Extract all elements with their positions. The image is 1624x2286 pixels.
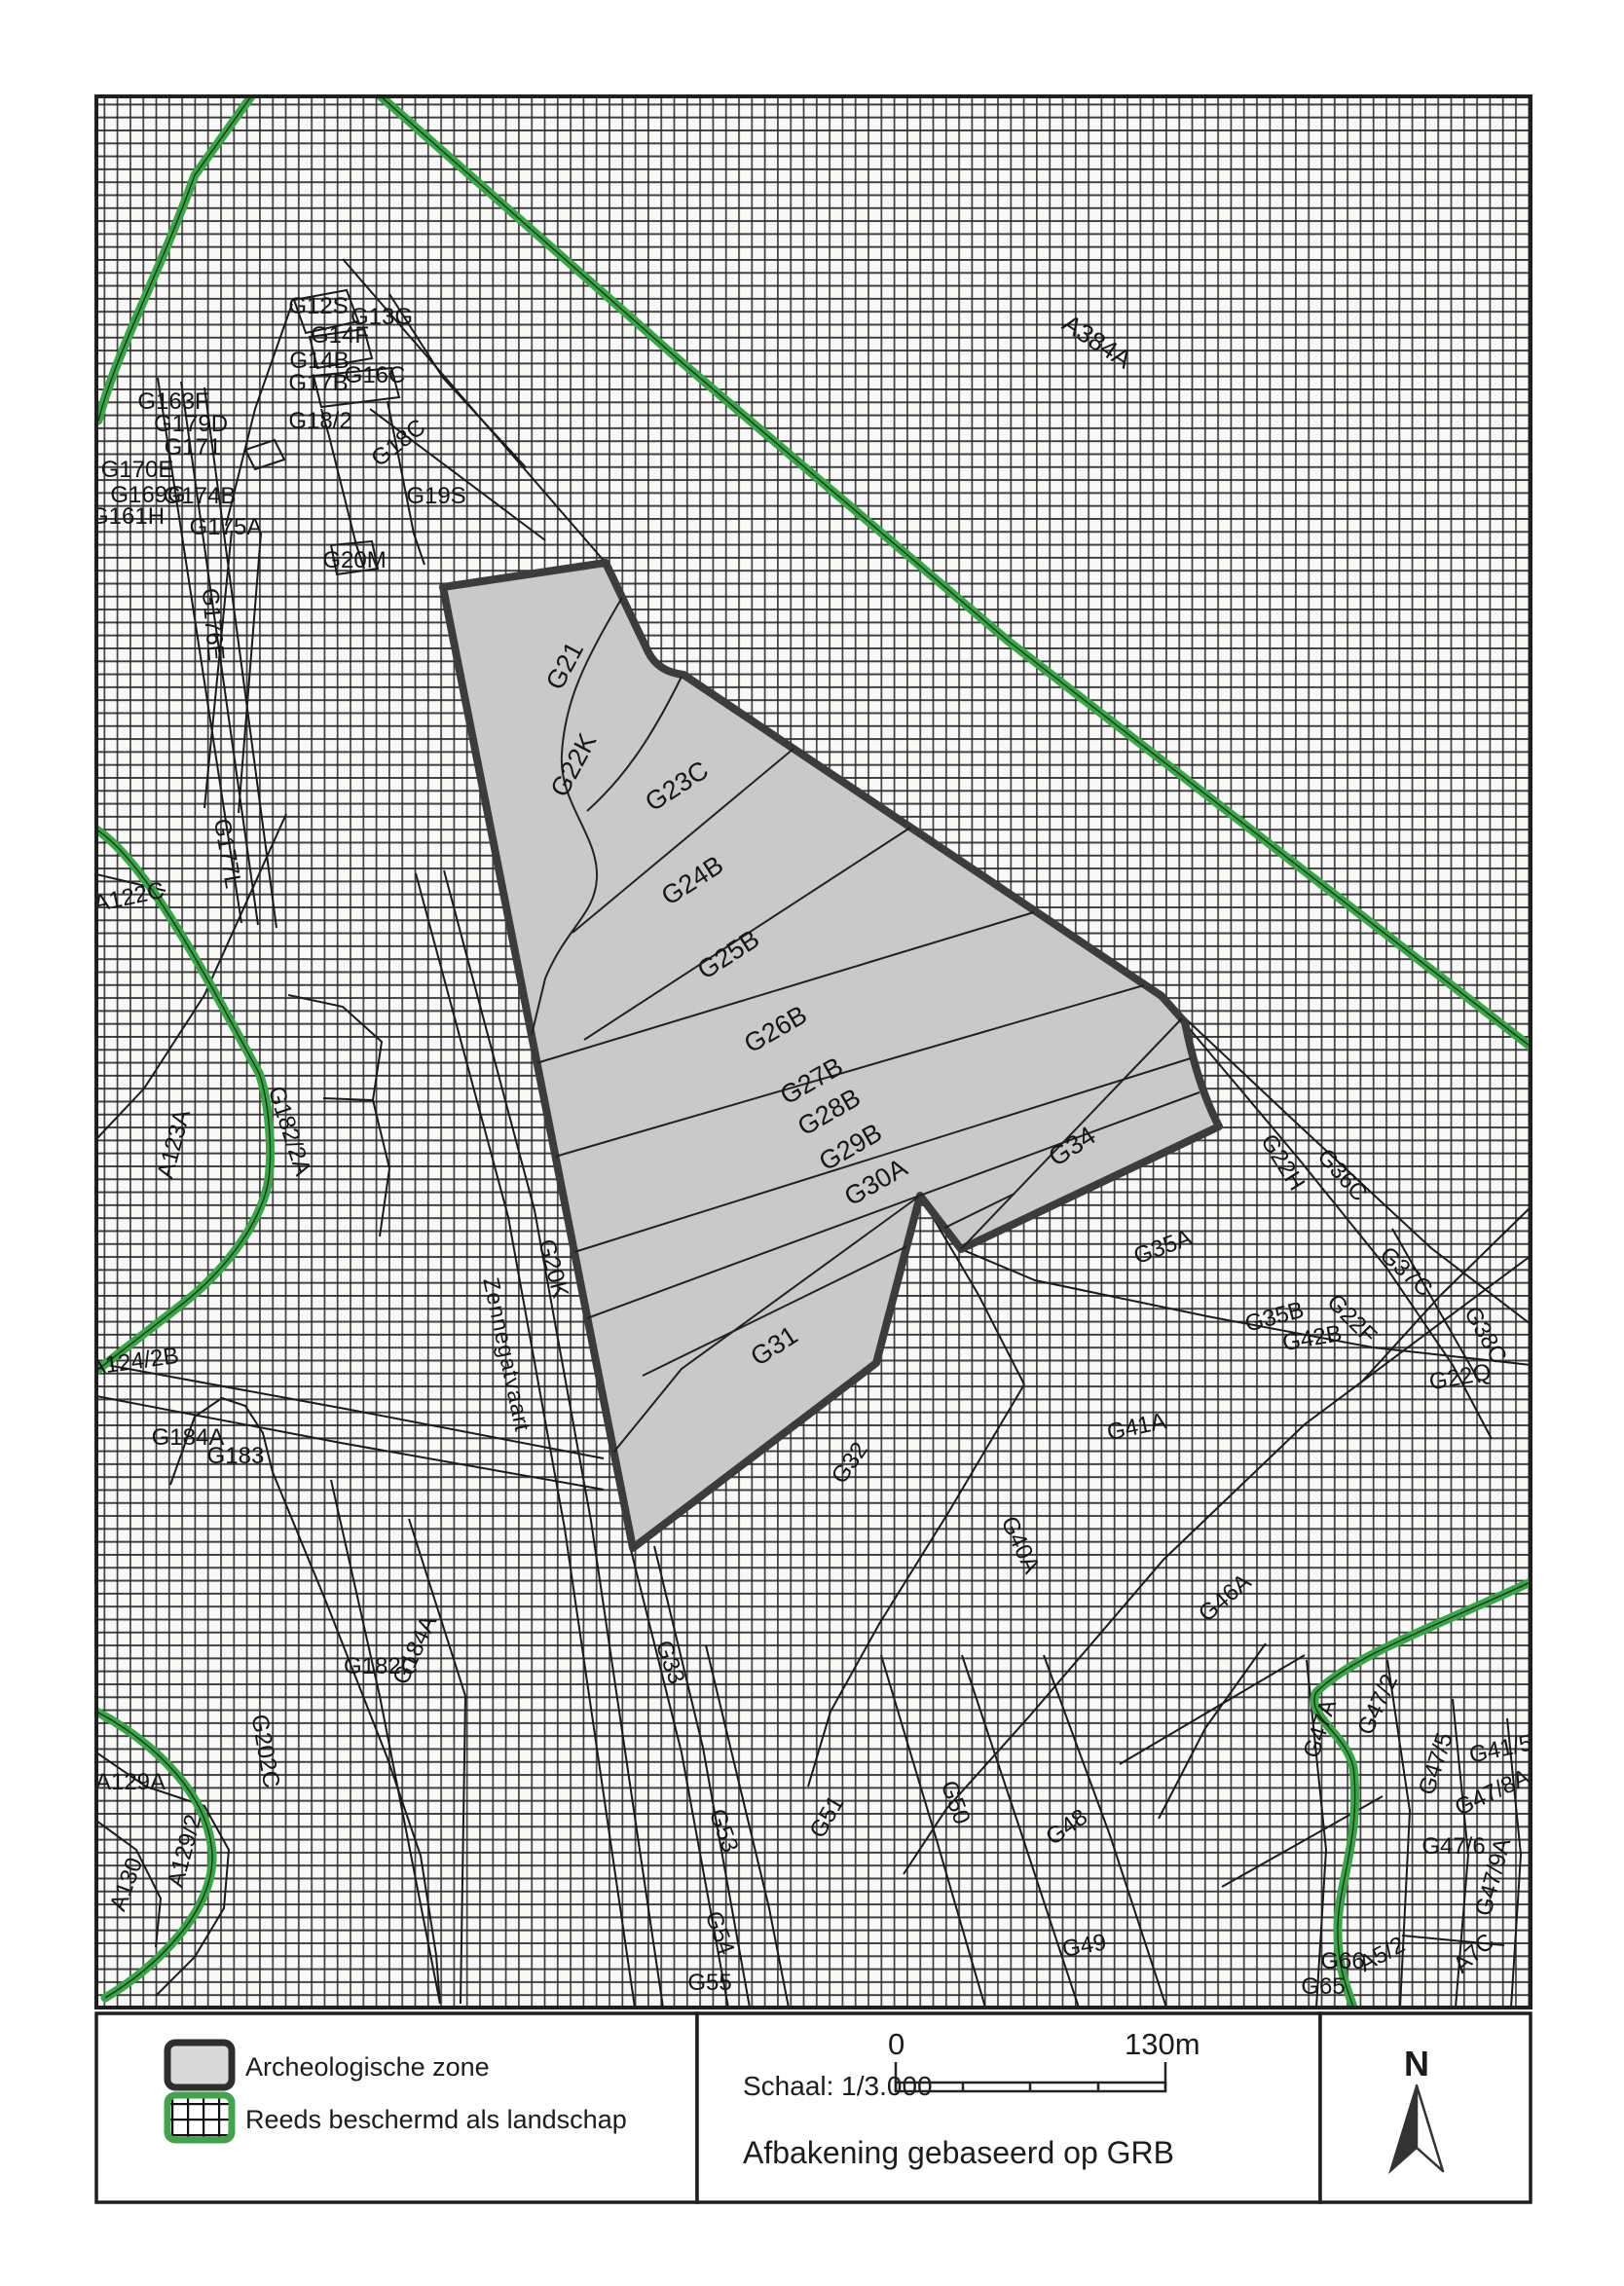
parcel-label: G16C	[345, 362, 406, 388]
parcel-label: G183	[207, 1443, 265, 1469]
scale-label: Schaal: 1/3.000	[743, 2071, 933, 2101]
gray-zone-swatch	[167, 2043, 232, 2087]
scale-bar-start: 0	[888, 2027, 904, 2061]
scale-bar-end: 130m	[1125, 2027, 1200, 2061]
parcel-label: G17B	[288, 370, 348, 396]
north-label: N	[1404, 2044, 1429, 2083]
parcel-label: G12S	[288, 293, 348, 319]
parcel-label: G18/2	[288, 408, 351, 434]
scale-panel: Schaal: 1/3.000 0 130m Afbakening gebase…	[697, 2013, 1320, 2202]
legend-panel: Archeologische zone Reeds beschermd als …	[96, 2013, 697, 2202]
parcel-label: G179D	[154, 411, 228, 437]
parcel-label: G19S	[406, 483, 465, 509]
map-svg: G21G22KG23CG24BG25BG26BG27BG28BG29BG30AG…	[0, 0, 1624, 2286]
parcel-label: G14F	[311, 322, 369, 349]
legend-item-label: Reeds beschermd als landschap	[245, 2105, 627, 2134]
map-sheet: G21G22KG23CG24BG25BG26BG27BG28BG29BG30AG…	[0, 0, 1624, 2286]
parcel-label: G55	[687, 1970, 731, 1996]
parcel-label: A129A	[95, 1769, 166, 1795]
parcel-label: G161H	[91, 503, 165, 530]
north-panel: N	[1320, 2013, 1531, 2202]
map-note: Afbakening gebaseerd op GRB	[743, 2135, 1174, 2170]
parcel-label: G174B	[164, 483, 237, 509]
parcel-label: G65	[1301, 1973, 1345, 2000]
parcel-label: G47/6	[1421, 1833, 1485, 1860]
legend-item-label: Archeologische zone	[245, 2052, 490, 2082]
parcel-label: G20M	[322, 547, 386, 573]
green-hatch-swatch	[167, 2095, 232, 2140]
parcel-label: G175A	[190, 514, 263, 540]
parcel-label: G170E	[101, 457, 174, 483]
